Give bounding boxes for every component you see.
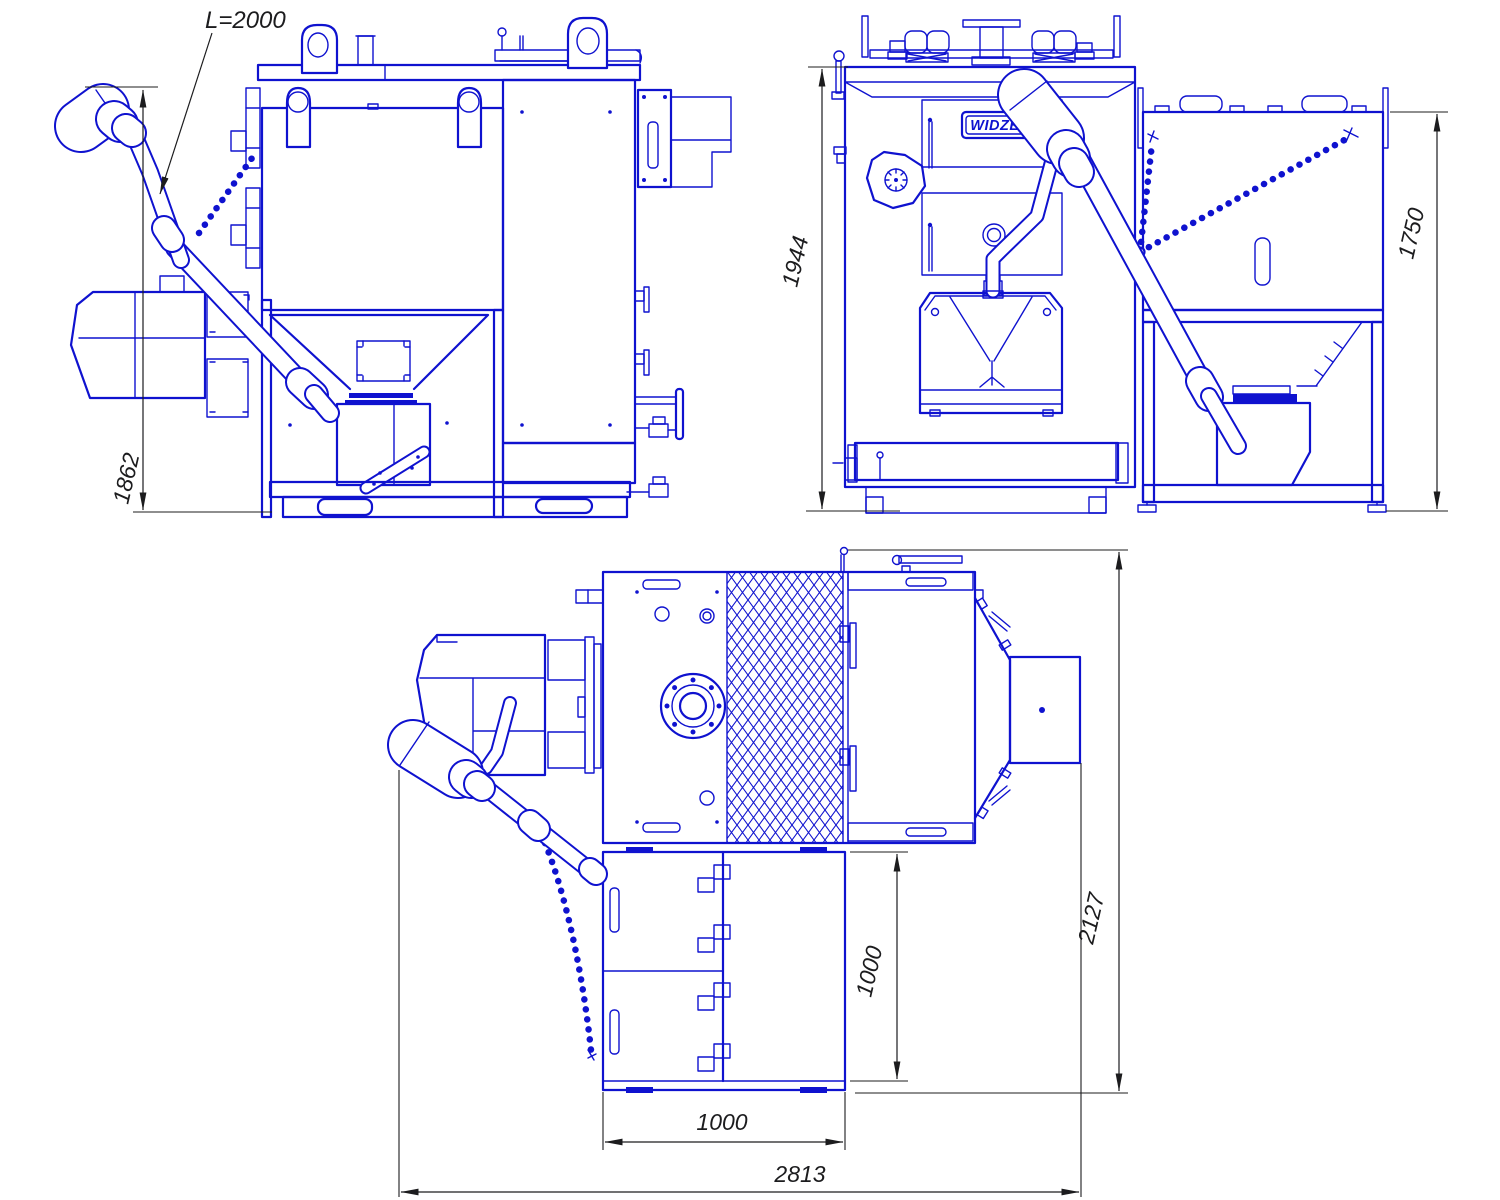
side-view: 1862 L=2000 — [71, 7, 731, 517]
burner-flange-plate — [345, 341, 417, 405]
boiler-technical-drawing: 1862 L=2000 — [0, 0, 1500, 1200]
dim-label-2127: 2127 — [1072, 889, 1109, 947]
dimension-hopper-depth: 1000 — [850, 852, 908, 1081]
draft-fan — [867, 152, 925, 208]
door-chain — [199, 151, 257, 233]
flue-collar-flange — [661, 674, 725, 738]
boiler-top-fittings — [576, 580, 725, 832]
dimension-auger-length: L=2000 — [160, 7, 286, 194]
base-frame — [270, 482, 630, 517]
dim-label-1000-horizontal: 1000 — [696, 1109, 747, 1135]
top-door — [840, 548, 973, 844]
boiler-door — [262, 88, 503, 310]
technical-drawing-page: 1862 L=2000 — [0, 0, 1500, 1200]
flue-damper-box — [638, 90, 731, 187]
auger-feeder-front — [983, 81, 1238, 446]
top-view: 1000 1000 2127 2813 — [399, 548, 1128, 1198]
lifting-lug — [568, 18, 607, 68]
front-view: WIDZEW — [777, 16, 1448, 513]
dim-label-l2000: L=2000 — [205, 7, 286, 34]
flue-outlet — [975, 590, 1080, 819]
lid-hinges — [698, 865, 730, 1071]
dim-label-1750: 1750 — [1393, 205, 1430, 261]
dim-label-1862: 1862 — [108, 450, 145, 506]
dim-label-2813: 2813 — [773, 1161, 825, 1187]
lid-chain — [1140, 144, 1152, 252]
dim-label-1944: 1944 — [777, 233, 814, 289]
dimension-hopper-width: 1000 — [603, 1092, 845, 1150]
dim-label-1000-vertical: 1000 — [851, 943, 888, 999]
dimension-front-height: 1944 — [777, 67, 900, 511]
tread-plate-mesh — [727, 572, 843, 843]
top-manifold — [862, 16, 1120, 65]
lifting-lug — [302, 25, 337, 73]
dimension-overall-depth: 2127 — [848, 550, 1128, 1093]
burner-assembly-plan — [400, 635, 601, 1060]
dimension-hopper-height: 1750 — [1386, 112, 1448, 511]
ash-drawer — [848, 443, 1128, 513]
lid-chain — [1140, 138, 1348, 252]
hopper-plan — [603, 847, 845, 1093]
hinge-brackets — [231, 88, 260, 268]
fuel-hopper — [1136, 88, 1389, 512]
